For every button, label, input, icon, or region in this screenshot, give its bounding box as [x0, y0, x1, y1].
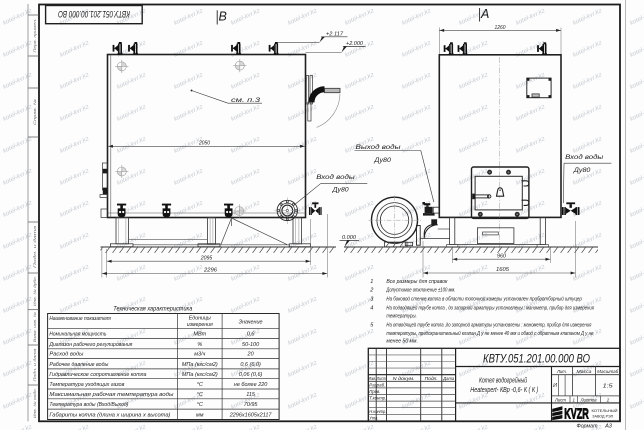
svg-text:На подводящей трубе котла , д: На подводящей трубе котла , до запорной … — [386, 305, 594, 312]
svg-text:Лит.: Лит. — [556, 369, 567, 374]
svg-text:KVZR: KVZR — [564, 406, 589, 423]
svg-text:1605: 1605 — [496, 267, 509, 273]
svg-text:Выход воды: Выход воды — [356, 143, 401, 151]
svg-text:Ду80: Ду80 — [573, 167, 591, 174]
svg-text:В: В — [219, 9, 227, 23]
svg-text:0,6 (6,0): 0,6 (6,0) — [240, 362, 261, 368]
svg-text:Котел водогрейный: Котел водогрейный — [479, 376, 527, 385]
svg-text:1: 1 — [370, 279, 373, 285]
svg-text:2296х1605х2117: 2296х1605х2117 — [229, 413, 273, 419]
svg-text:1260: 1260 — [495, 25, 506, 31]
svg-text:Ду80: Ду80 — [373, 157, 391, 164]
svg-text:2296: 2296 — [203, 268, 217, 274]
svg-text:А: А — [480, 7, 489, 21]
svg-text:+2.117: +2.117 — [326, 31, 344, 37]
svg-text:см. п.3: см. п.3 — [231, 97, 261, 104]
svg-text:°С: °С — [197, 402, 203, 408]
svg-text:Значение: Значение — [239, 320, 263, 326]
svg-text:ЗАВОД РЭП: ЗАВОД РЭП — [592, 414, 613, 419]
svg-text:Инв. № дубл.: Инв. № дубл. — [33, 276, 37, 306]
svg-text:Вход воды: Вход воды — [565, 153, 603, 161]
svg-text:Подп. и дата: Подп. и дата — [33, 226, 37, 268]
svg-text:Подп.: Подп. — [425, 376, 438, 381]
svg-text:Ду80: Ду80 — [332, 187, 349, 194]
svg-text:температуры, предохранительный: температуры, предохранительный клапан Д … — [386, 330, 593, 337]
svg-text:1:5: 1:5 — [603, 383, 614, 389]
svg-text:МВт: МВт — [193, 332, 206, 338]
svg-text:Формат: Формат — [577, 424, 599, 430]
svg-text:Лист: Лист — [376, 376, 386, 381]
svg-text:Т.контр.: Т.контр. — [369, 396, 386, 401]
svg-text:Подп. и дата: Подп. и дата — [33, 348, 37, 381]
svg-text:м3/ч: м3/ч — [194, 352, 205, 358]
svg-text:N докум.: N докум. — [393, 376, 415, 381]
svg-text:Листов: Листов — [580, 397, 598, 402]
svg-text:измерения: измерения — [187, 322, 213, 328]
svg-text:Дата: Дата — [442, 376, 454, 381]
svg-text:Масштаб: Масштаб — [597, 369, 619, 374]
svg-text:Температура уходящих газов: Температура уходящих газов — [49, 382, 124, 388]
svg-text:Рабочее давление воды: Рабочее давление воды — [49, 362, 109, 368]
svg-text:Температура воды (Вход/Выход): Температура воды (Вход/Выход) — [49, 402, 128, 408]
svg-text:2050: 2050 — [198, 141, 210, 147]
svg-text:50-100: 50-100 — [242, 342, 260, 348]
svg-text:Вход воды: Вход воды — [316, 173, 355, 181]
svg-text:4: 4 — [370, 306, 373, 312]
svg-text:+2.000: +2.000 — [346, 41, 363, 47]
svg-text:Изм.: Изм. — [368, 376, 376, 381]
svg-text:Н.контр.: Н.контр. — [369, 409, 386, 414]
svg-text:Утв.: Утв. — [369, 416, 378, 421]
svg-text:мм: мм — [196, 413, 204, 419]
svg-text:0,6: 0,6 — [247, 332, 256, 338]
svg-text:температуры.: температуры. — [386, 314, 416, 320]
svg-text:Гидравлическое сопротивление к: Гидравлическое сопротивление котла — [49, 372, 147, 378]
svg-text:Пров.: Пров. — [369, 389, 380, 394]
svg-text:Справ. №: Справ. № — [33, 99, 37, 125]
svg-text:115: 115 — [246, 392, 256, 398]
svg-text:Наименование показателя: Наименование показателя — [49, 316, 111, 322]
svg-text:Перв. примен.: Перв. примен. — [33, 18, 37, 52]
svg-text:20: 20 — [247, 352, 255, 358]
svg-text:0,06 (0,6): 0,06 (0,6) — [239, 372, 263, 378]
svg-text:Габариты котла (длина х ширина: Габариты котла (длина х ширина х высота) — [49, 413, 170, 419]
svg-text:Расход воды: Расход воды — [49, 352, 84, 358]
svg-text:Все размеры для справок: Все размеры для справок — [386, 279, 447, 285]
svg-text:менее 50 мм.: менее 50 мм. — [386, 339, 418, 345]
svg-text:КВТУ.051.201.00.000 ВО: КВТУ.051.201.00.000 ВО — [58, 9, 130, 19]
svg-text:Инв. № подл.: Инв. № подл. — [33, 388, 37, 418]
svg-text:Техническая характеристика: Техническая характеристика — [113, 306, 193, 313]
svg-text:Разраб.: Разраб. — [369, 383, 385, 388]
svg-text:°С: °С — [197, 392, 203, 398]
svg-text:Heatexpert- КВр -0,6- К ( К ): Heatexpert- КВр -0,6- К ( К ) — [470, 385, 538, 394]
svg-text:Допустимое отклонение ±100 мм: Допустимое отклонение ±100 мм. — [386, 288, 456, 294]
svg-text:МПа (кгс/см2): МПа (кгс/см2) — [182, 362, 218, 368]
svg-text:МПа (кгс/см2): МПа (кгс/см2) — [182, 372, 218, 378]
svg-text:Масса: Масса — [577, 369, 593, 374]
svg-text:2: 2 — [606, 397, 610, 402]
svg-text:70/95: 70/95 — [244, 402, 259, 408]
svg-text:А3: А3 — [604, 424, 613, 430]
svg-text:Лист: Лист — [554, 397, 566, 402]
svg-text:960: 960 — [497, 253, 506, 259]
svg-text:2095: 2095 — [200, 255, 213, 261]
svg-text:Номинальная мощность: Номинальная мощность — [49, 332, 106, 338]
svg-text:Максимальная рабочая температу: Максимальная рабочая температура воды — [49, 392, 174, 398]
svg-text:не более 220: не более 220 — [234, 382, 269, 388]
svg-text:На боковой стенке котла в обла: На боковой стенке котла в области топочн… — [386, 296, 581, 303]
svg-text:0.000: 0.000 — [342, 235, 356, 241]
svg-text:КОТЕЛЬНЫЙ: КОТЕЛЬНЫЙ — [592, 408, 618, 413]
svg-text:°С: °С — [197, 382, 203, 388]
svg-text:Взам. инв. №: Взам. инв. № — [33, 312, 37, 342]
svg-text:Диапазон рабочего регулировани: Диапазон рабочего регулирования — [49, 342, 133, 348]
svg-text:КВТУ.051.201.00.000 ВО: КВТУ.051.201.00.000 ВО — [483, 351, 590, 365]
svg-text:На отводящей трубе котла ,до з: На отводящей трубе котла ,до запорной ар… — [386, 322, 591, 329]
svg-text:И: И — [553, 383, 557, 389]
svg-text:Единицы: Единицы — [189, 316, 211, 322]
svg-text:%: % — [197, 342, 202, 348]
